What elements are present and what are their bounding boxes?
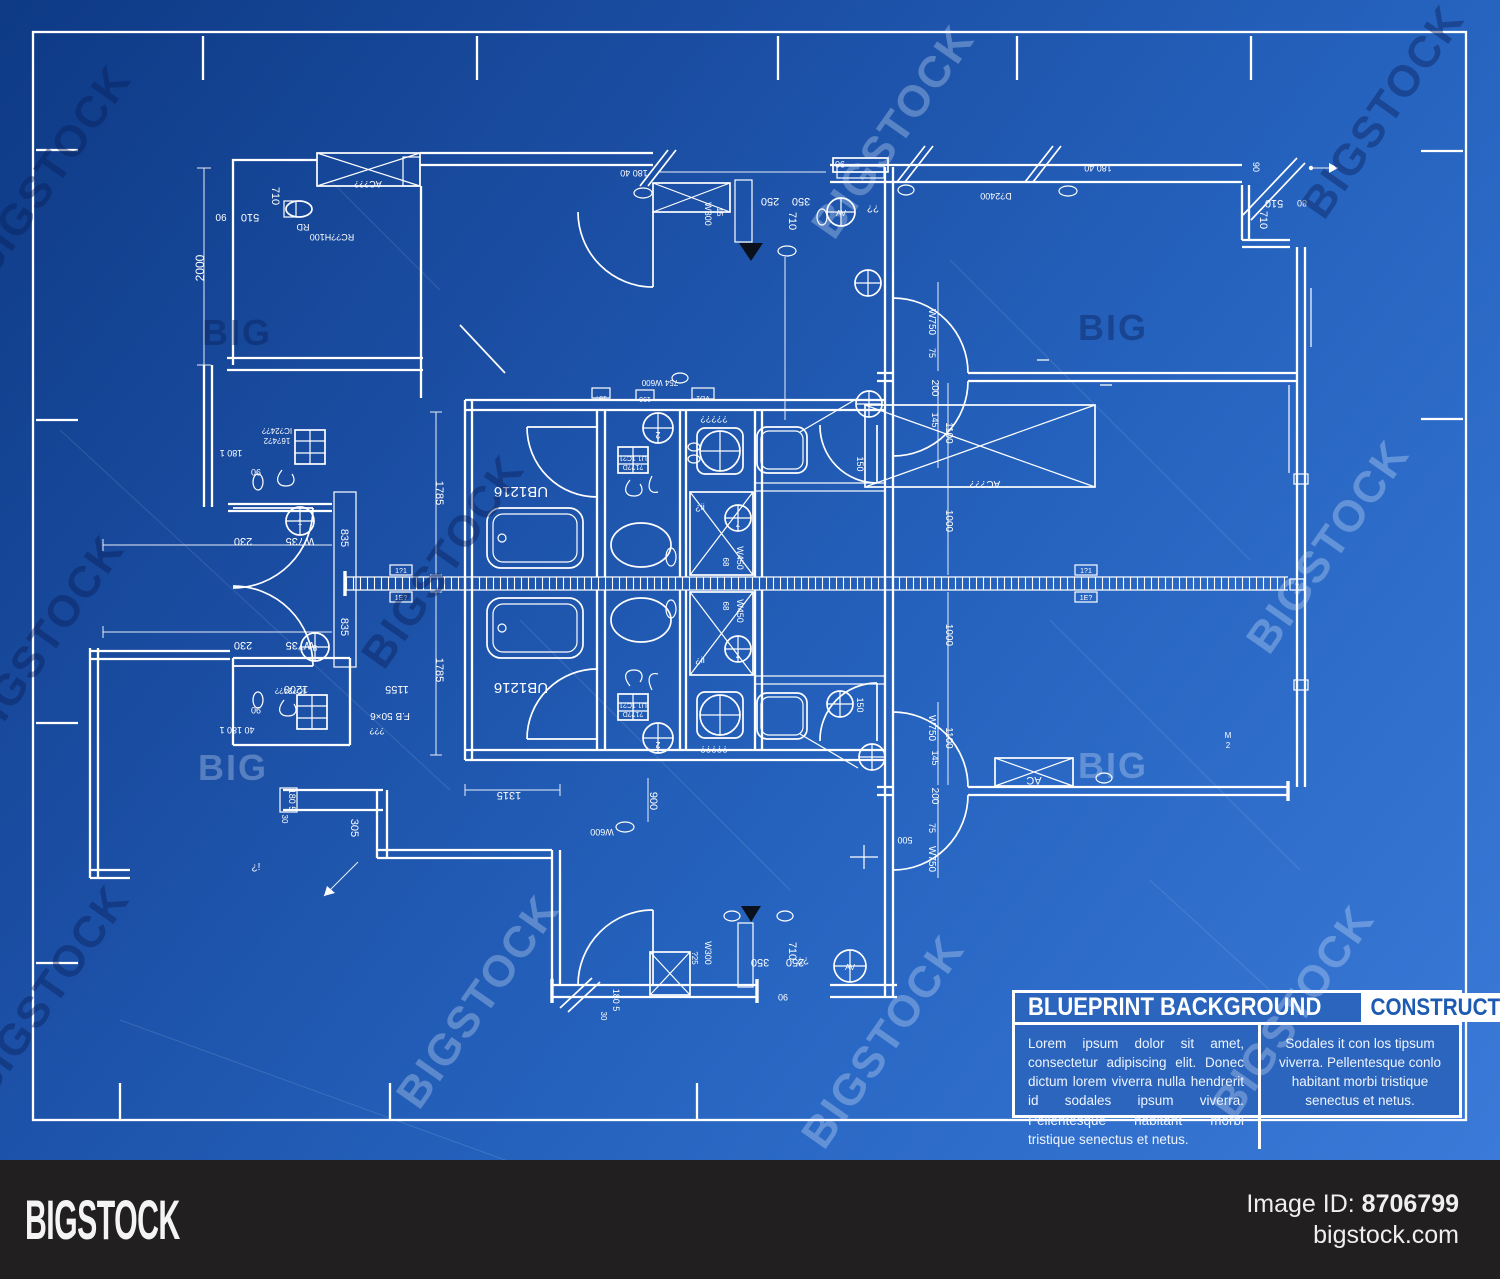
dim-label: 250 (761, 195, 779, 207)
dim-label: 500 (897, 835, 912, 845)
dim-label: 710 (1257, 211, 1269, 229)
dim-label: ¿ii (695, 655, 705, 665)
dim-label: 1000 (943, 510, 954, 533)
title-block: BLUEPRINT BACKGROUND CONSTRUCTION Lorem … (1012, 990, 1462, 1118)
title-block-category: CONSTRUCTION (1364, 993, 1500, 1022)
dim-label: 900 (647, 792, 659, 810)
dim-label: 90 (835, 159, 845, 169)
dim-label: 835 (338, 618, 350, 636)
category-description-text: Sodales it con los tipsum viverra. Pelle… (1261, 1025, 1459, 1149)
dim-label: 1100 (943, 727, 954, 749)
dim-label: 200 (929, 788, 940, 805)
dim-label: 1 (298, 518, 303, 527)
dim-label: 510 (241, 211, 259, 223)
dim-label: ?1??D (623, 710, 644, 717)
bigstock-logo[interactable]: BIGSTOCK (25, 1192, 180, 1248)
dim-label: ¿¿¿¿¿ (700, 413, 728, 423)
dim-label: 510 (1265, 197, 1283, 209)
site-link[interactable]: bigstock.com (1246, 1220, 1459, 1251)
title-block-body: Lorem ipsum dolor sit amet, consectetur … (1015, 1025, 1459, 1149)
dim-label: 3 (313, 644, 318, 653)
dim-label: 80 (1297, 198, 1307, 208)
dim-label: 30 (599, 1012, 608, 1021)
dim-label: W750 (926, 309, 937, 336)
dim-label: W450 (735, 546, 745, 570)
blueprint-image: 200071051090RDRC??H100AC???180 40W300152… (0, 0, 1500, 1160)
dim-label: ¿¿ (867, 203, 879, 214)
dim-label: W750 (926, 715, 937, 742)
dim-label: AV (836, 209, 847, 218)
frame-border (33, 32, 1466, 1120)
dim-label: 68 (721, 558, 730, 567)
dim-label: RD (296, 222, 309, 232)
title-text: BLUEPRINT BACKGROUND (1028, 993, 1321, 1022)
dim-label: D?2400 (980, 191, 1012, 201)
floor-plan-drawing: 200071051090RDRC??H100AC???180 40W300152… (0, 0, 1500, 1160)
dim-label: 1?1 (395, 568, 407, 575)
image-id-value: 8706799 (1362, 1190, 1459, 1218)
dim-label: 835 (338, 529, 350, 547)
dim-label: 90 (251, 705, 261, 715)
description-text: Lorem ipsum dolor sit amet, consectetur … (1015, 1025, 1261, 1149)
dim-label: 7 (735, 519, 740, 528)
dim-label: W450 (735, 599, 745, 623)
dim-label: 30 (280, 815, 289, 824)
footer-bar: BIGSTOCK Image ID: 8706799 bigstock.com (0, 1160, 1500, 1279)
dim-label: 2 (655, 430, 660, 440)
dim-label: 40 180 1 (219, 725, 254, 735)
dim-label: 754 W600 (641, 378, 678, 387)
dim-label: 350 (751, 956, 769, 968)
dim-label: U1 1C?1 (619, 454, 647, 461)
dim-label: 90 (1251, 162, 1261, 172)
title-block-header: BLUEPRINT BACKGROUND CONSTRUCTION (1015, 993, 1459, 1025)
dim-label: 1100 (943, 422, 954, 444)
dim-label: ¿¿¿¿¿ (700, 743, 728, 753)
dim-label: IC?24?? (274, 686, 305, 695)
dim-label: 1785 (433, 658, 445, 682)
dim-label: W300 (703, 202, 713, 226)
dim-label: F.B 50×6 (370, 710, 410, 721)
dim-label: 145 (930, 412, 940, 427)
dim-label: W600 (590, 827, 614, 837)
dim-label: 150 (855, 456, 865, 471)
dim-label: 15 (715, 208, 724, 217)
door-swings (233, 212, 968, 985)
crossed-boxes (317, 153, 1095, 995)
dim-label: 180 5 (287, 789, 297, 812)
dim-label: 75 (927, 348, 937, 358)
dim-label: 230 (234, 639, 252, 651)
dim-label: 16?4?2 (263, 436, 290, 445)
dim-label: 75 (927, 823, 937, 833)
dim-label: 2 (1226, 741, 1231, 750)
dim-label: W735 (286, 535, 315, 547)
dim-label: AC??? (354, 179, 382, 189)
dim-label: 180 5 (611, 989, 621, 1012)
dim-label: 7 (735, 650, 740, 659)
dim-label: 1315 (497, 789, 521, 801)
stock-photo-preview: 200071051090RDRC??H100AC???180 40W300152… (0, 0, 1500, 1279)
dim-label: AC (1026, 774, 1041, 786)
dim-label: 145 (930, 750, 940, 765)
dim-label: ? (1295, 583, 1299, 590)
image-id-line: Image ID: 8706799 (1246, 1189, 1459, 1220)
dim-label: AV (845, 963, 856, 972)
image-id-label: Image ID: (1246, 1190, 1354, 1218)
dim-label: 150 (855, 697, 865, 712)
dim-label: UB1216 (494, 679, 548, 696)
dim-label: ??? (369, 726, 384, 736)
dim-label: 1155 (385, 683, 409, 695)
dim-label: 90 (215, 211, 227, 222)
dim-label: ¿ii (695, 502, 705, 512)
dim-label: 90 (251, 467, 261, 477)
dim-label: VD1 (696, 394, 710, 401)
dim-label: 180 40 (1084, 163, 1112, 173)
dim-label: W300 (703, 941, 713, 965)
dim-label: 2 (655, 740, 660, 750)
dim-label: 190 (639, 395, 651, 402)
dim-label: U1 1C?1 (619, 701, 647, 708)
dim-label: 1000 (943, 624, 954, 647)
dim-label: AC??? (969, 478, 1000, 489)
toilet (284, 201, 671, 642)
dim-label: ¿¿ (797, 955, 809, 966)
dim-label: 230 (234, 535, 252, 547)
dim-label: M (1225, 731, 1232, 740)
dim-label: 1?1 (1080, 568, 1092, 575)
image-meta: Image ID: 8706799 bigstock.com (1246, 1189, 1459, 1250)
dim-label: 1785 (433, 481, 445, 505)
dim-label: ¿! (252, 862, 261, 873)
dim-label: W735 (286, 639, 315, 651)
dim-label: W750 (926, 846, 937, 873)
dim-label: 90 (778, 992, 788, 1002)
dim-label: 68 (721, 602, 730, 611)
dim-label: 1E? (1080, 595, 1093, 602)
dim-label: 1E? (395, 595, 408, 602)
dim-label: ?1??D (623, 463, 644, 470)
dim-label: IC?24?? (261, 426, 292, 435)
dim-label: ?25 (690, 951, 699, 965)
dim-label: 180 40 (620, 168, 648, 178)
dim-label: 2000 (193, 254, 207, 281)
dim-label: 710 (269, 187, 281, 205)
dim-label: 180 1 (220, 448, 243, 458)
dim-label: 200 (929, 380, 940, 397)
dim-label: 305 (348, 819, 360, 837)
dim-label: UB1216 (494, 483, 548, 500)
dim-label: 710 (786, 212, 798, 230)
dim-label: RC??H100 (310, 232, 355, 242)
title-block-title: BLUEPRINT BACKGROUND (1015, 993, 1364, 1022)
dim-label: 15? (595, 394, 607, 401)
category-text: CONSTRUCTION (1370, 994, 1500, 1022)
dim-label: 350 (792, 195, 810, 207)
